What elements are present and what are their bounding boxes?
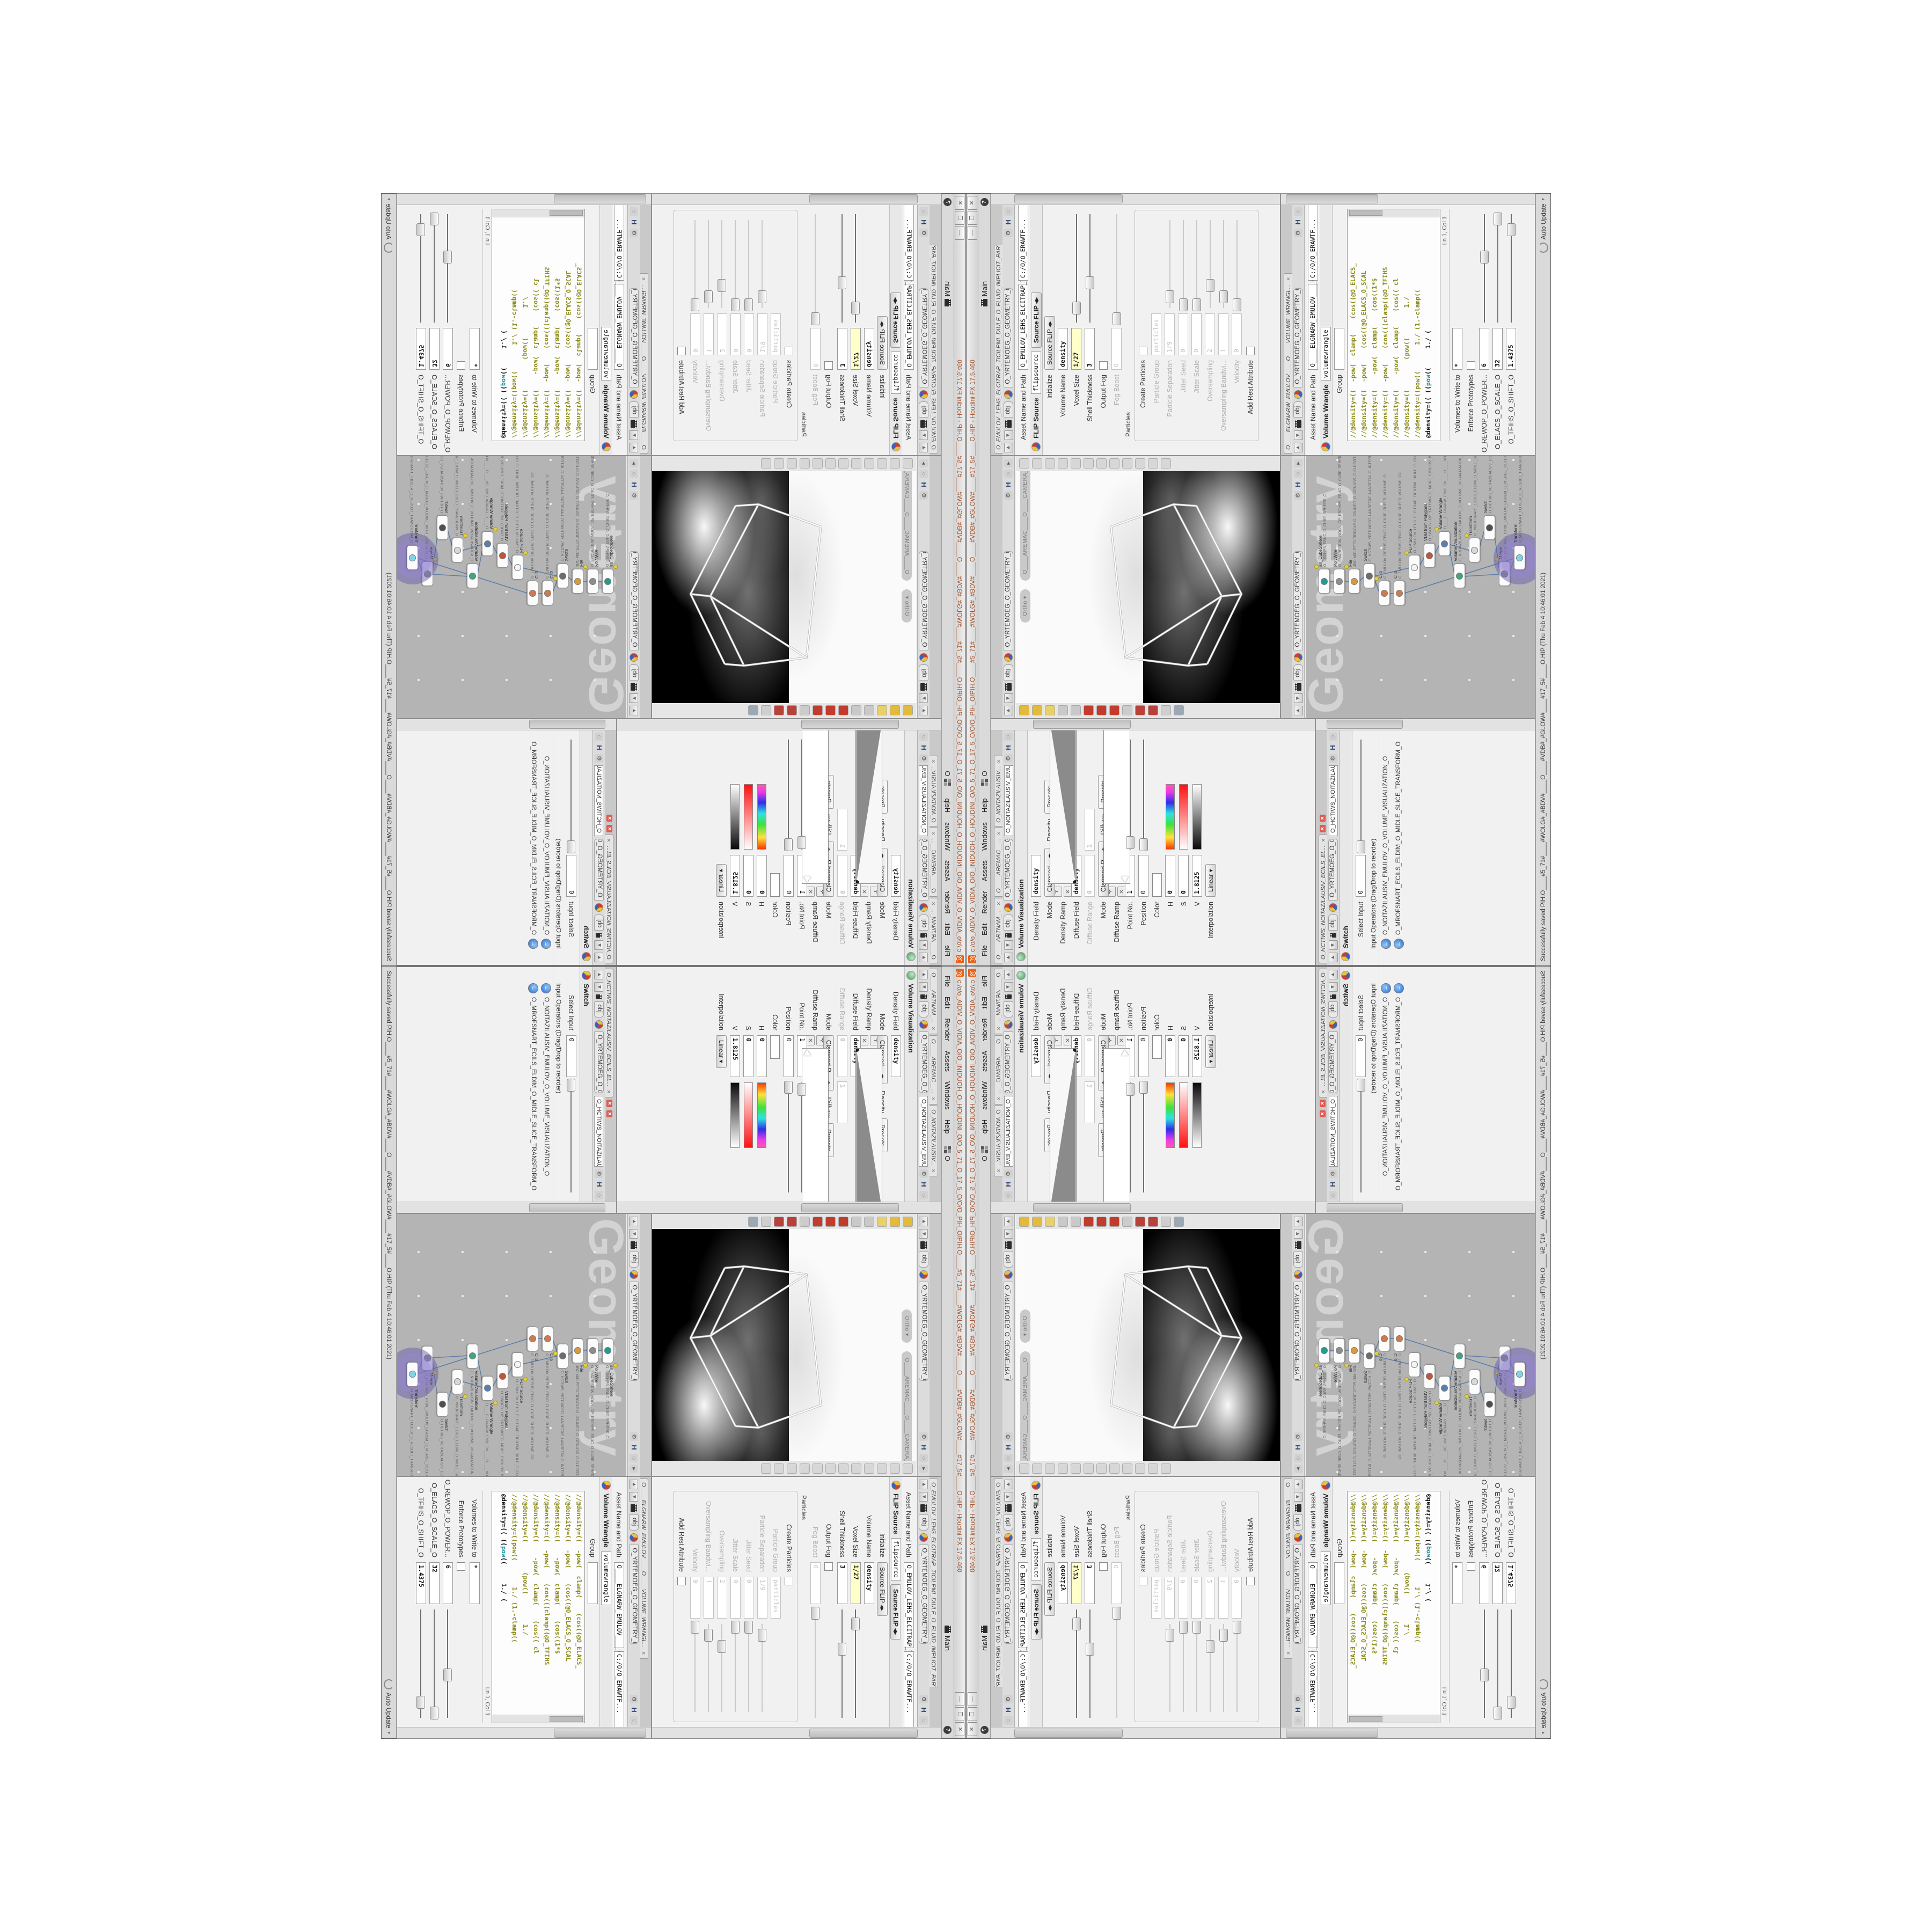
path-crumb-node[interactable]: O_YRTEMOEG_O_GEOMETRY_O xyxy=(919,1282,928,1381)
gear-icon[interactable]: ⚙ xyxy=(919,754,928,763)
path-crumb-obj[interactable]: obj xyxy=(1293,401,1303,418)
path-up-icon[interactable]: ▲ xyxy=(630,1480,639,1489)
ortho-pill[interactable]: Ortho ▾ xyxy=(902,589,912,623)
search-icon[interactable]: ◌ xyxy=(1004,1191,1013,1199)
checkbox[interactable] xyxy=(1467,361,1475,370)
param-field[interactable]: density xyxy=(1031,855,1041,897)
close-button[interactable]: ✕ xyxy=(955,196,965,210)
menu-assets[interactable]: Assets xyxy=(980,1046,989,1077)
pane-scrollbar[interactable] xyxy=(1316,719,1535,730)
pane-tab[interactable]: O____ELGNARW_EMULOV____O____VOLUME_WRANG… xyxy=(1284,273,1292,453)
snap-magnet-icon[interactable] xyxy=(1135,1217,1145,1227)
shade-icon[interactable] xyxy=(1071,459,1081,469)
minimize-button[interactable]: — xyxy=(968,1692,977,1706)
param-slider[interactable] xyxy=(1165,220,1174,308)
pane-scrollbar[interactable] xyxy=(652,1727,941,1738)
path-crumb-obj[interactable]: obj xyxy=(1293,1252,1303,1268)
tab-close-icon[interactable]: ✕ xyxy=(931,831,936,836)
hue-slider-track[interactable] xyxy=(757,1082,766,1148)
network-node-clip[interactable]: ClipO_EMULOV_REPUS_EBUC_O_CUBE_SUPER_VOL… xyxy=(527,1327,538,1351)
param-field[interactable]: 1.4375 xyxy=(1506,1562,1516,1604)
asset-name-field[interactable]: O_EMULOV_LEHS_ELCITRAP_TICI xyxy=(1018,284,1028,370)
input-operator-row[interactable]: ←O_NOITAZILAUSIV_EMULOV_O_VOLUME_VISUALI… xyxy=(540,730,553,965)
slider-handle[interactable] xyxy=(1206,279,1214,292)
desktop-selector[interactable]: Main xyxy=(944,281,952,306)
axis-tool-icon[interactable] xyxy=(1122,1217,1132,1227)
camera-pill[interactable]: O____AREMAC____O____CAMERA____O xyxy=(1020,1351,1030,1461)
menu-edit[interactable]: Edit xyxy=(980,992,989,1013)
scrollbar-thumb[interactable] xyxy=(809,1729,918,1738)
tab-close-icon[interactable]: ✕ xyxy=(996,1097,1002,1101)
input-operator-row[interactable]: ←O_MROFSNART_ECILS_ELDIM_O_MIDLE_SLICE_T… xyxy=(1392,967,1405,1202)
tab-close-red-icon[interactable]: ✕ xyxy=(606,1110,612,1118)
gear-icon[interactable]: ⚙ xyxy=(1294,229,1302,237)
network-node-transform[interactable]: TransformO_MROFSNART_TLUSER_O_RESULT_TRA… xyxy=(1514,1362,1525,1387)
title-bar[interactable]: c:/o/o_AIDIV_O_VIDIA_O/O_INIDUOH_O_HOUDI… xyxy=(954,194,965,965)
param-field[interactable]: 1/9 xyxy=(757,1577,767,1619)
pane-tab[interactable]: O____ELGNARW_EMULOV____O____VOLUME_WRANG… xyxy=(640,273,648,453)
network-canvas[interactable]: Geometryan_CubeSphereO_EREHPS_EBUC_O_CUB… xyxy=(1306,456,1535,718)
param-field[interactable]: particles xyxy=(1151,1577,1161,1619)
network-node-polywire[interactable]: PolyWireO_EMARFERIW_NOGYLOP_EREHPS_EBUC_… xyxy=(1334,1338,1345,1363)
pane-path-field[interactable]: O_NOITAZILAUSIV_EMULO xyxy=(919,765,928,836)
val-slider-track[interactable] xyxy=(730,784,740,850)
network-node-switch[interactable]: SwitchO_HCTIWS_NOITAZILAUSIV_ECILS_ELDIM… xyxy=(1484,1392,1495,1417)
gear-icon[interactable]: ⚙ xyxy=(1294,491,1302,500)
axis-tool-icon[interactable] xyxy=(1122,706,1132,716)
param-dropdown[interactable]: Linear ▾ xyxy=(1205,1035,1216,1068)
network-node-switch[interactable]: SwitchO_HCTIWS_NOITAZILAUSIV_ECILS_ELDIM… xyxy=(437,1392,448,1417)
path-down-icon[interactable]: ▼ xyxy=(1004,940,1013,950)
network-node-an-cubesphere[interactable]: an_CubeSphereO_EREHPS_EBUC_O_CUBE_SPHERE… xyxy=(602,569,613,594)
lasso-tool-icon[interactable] xyxy=(1032,706,1042,716)
tab-close-icon[interactable]: ✕ xyxy=(931,1097,936,1101)
network-node-volume-visualization[interactable]: Volume VisualizationO_NOITAZILAUSIV_EMUL… xyxy=(467,1344,478,1368)
normals-icon[interactable] xyxy=(813,1463,823,1474)
path-crumb-node[interactable]: O_YRTEMOEG_O_GEOMETRY_O xyxy=(629,551,639,650)
search-icon[interactable]: ◌ xyxy=(630,1716,638,1725)
pane-path-field[interactable]: O_NOITAZILAUSIV_EMULO xyxy=(919,1096,928,1167)
slider-handle[interactable] xyxy=(1072,302,1081,314)
path-up-icon[interactable]: ▲ xyxy=(630,1217,639,1226)
param-field[interactable]: 1.4375 xyxy=(416,328,426,370)
rotate-tool-icon[interactable] xyxy=(1084,706,1094,716)
param-slider[interactable] xyxy=(851,214,860,323)
normals-icon[interactable] xyxy=(1109,1463,1119,1474)
param-slider[interactable] xyxy=(1179,1624,1188,1712)
pane-tab[interactable]: O_NOITAZILAUSIV...✕ xyxy=(930,1106,938,1176)
viewport-canvas[interactable]: Ortho ▾O____AREMAC____O____CAMERA____O xyxy=(652,1229,916,1461)
snap-multi-icon[interactable] xyxy=(774,1217,784,1227)
scrollbar-thumb[interactable] xyxy=(801,1203,899,1212)
scrollbar-thumb[interactable] xyxy=(529,1203,605,1212)
param-slider[interactable] xyxy=(704,1624,713,1712)
pane-tab[interactable]: O_NOITAZILAUSIV...✕ xyxy=(994,756,1002,826)
checkbox[interactable] xyxy=(1246,347,1255,355)
gear-icon[interactable]: ⚙ xyxy=(1004,1169,1013,1178)
checkbox[interactable] xyxy=(1099,361,1108,370)
help-icon[interactable]: ? xyxy=(944,198,952,206)
lights-icon[interactable] xyxy=(1122,1463,1132,1474)
paint-tool-icon[interactable] xyxy=(1045,1217,1055,1227)
path-down-icon[interactable]: ▼ xyxy=(1004,430,1013,440)
tab-close-icon[interactable]: ✕ xyxy=(996,902,1002,906)
param-field[interactable]: 2 xyxy=(717,313,727,355)
param-field[interactable]: * xyxy=(470,328,480,370)
gear-icon[interactable]: ⚙ xyxy=(630,1432,638,1441)
param-field[interactable]: 0 xyxy=(1138,855,1148,897)
checkbox[interactable] xyxy=(785,347,794,355)
menu-edit[interactable]: Edit xyxy=(944,919,952,940)
points-icon[interactable] xyxy=(1096,459,1107,469)
fog-icon[interactable] xyxy=(1135,459,1145,469)
range-max-field[interactable]: 1 xyxy=(1085,809,1095,851)
fog-icon[interactable] xyxy=(787,1463,797,1474)
scrollbar-thumb[interactable] xyxy=(1033,1203,1131,1212)
param-slider[interactable] xyxy=(1139,1082,1148,1192)
gear-icon[interactable]: ⚙ xyxy=(919,1169,928,1178)
snapshot-icon[interactable] xyxy=(761,459,771,469)
scrollbar-thumb[interactable] xyxy=(1286,1729,1378,1738)
pane-expand-icon[interactable]: ▸ xyxy=(1004,1465,1013,1473)
param-slider[interactable] xyxy=(1192,220,1201,308)
param-field[interactable] xyxy=(1334,328,1344,370)
slider-handle[interactable] xyxy=(1480,1668,1489,1681)
path-up-icon[interactable]: ▲ xyxy=(1329,953,1338,962)
tab-close-icon[interactable]: ✕ xyxy=(641,1651,647,1656)
render-region-icon[interactable] xyxy=(1161,706,1171,716)
param-dropdown[interactable]: Linear ▾ xyxy=(1205,864,1216,897)
param-field[interactable]: 3 xyxy=(837,328,847,370)
pane-expand-icon[interactable]: ▸ xyxy=(919,1465,928,1473)
input-arrow-icon[interactable]: ← xyxy=(529,939,539,949)
pane-expand-icon[interactable]: ▸ xyxy=(630,459,638,467)
path-up-icon[interactable]: ▲ xyxy=(919,443,928,452)
pane-scrollbar[interactable] xyxy=(397,1202,616,1213)
pane-expand-icon[interactable]: ▸ xyxy=(1004,459,1013,467)
network-node-volume-wrangle[interactable]: Volume WrangleO____ELGNARW_EMULOV____O__… xyxy=(482,531,493,556)
menu-assets[interactable]: Assets xyxy=(980,855,989,886)
param-field[interactable]: 1/9 xyxy=(757,313,767,355)
slider-handle[interactable] xyxy=(1206,1640,1214,1653)
path-down-icon[interactable]: ▼ xyxy=(1294,430,1303,440)
snapshot-icon[interactable] xyxy=(1161,459,1171,469)
menu-file[interactable]: File xyxy=(980,940,989,961)
pane-path-field[interactable]: O_HCTIWS_NOITAZILAUSIV_ECILS_EL xyxy=(1329,765,1338,836)
path-down-icon[interactable]: ▼ xyxy=(919,430,928,440)
pane-scrollbar[interactable] xyxy=(991,719,1315,730)
path-crumb-obj[interactable]: obj xyxy=(1293,664,1303,680)
search-icon[interactable]: ◌ xyxy=(919,733,928,741)
slider-handle[interactable] xyxy=(1233,298,1241,311)
search-icon[interactable]: ◌ xyxy=(1329,1191,1337,1199)
path-crumb-obj[interactable]: obj xyxy=(1328,1001,1338,1018)
tab-close-red-icon[interactable]: ✕ xyxy=(1320,1110,1326,1118)
scrollbar-thumb[interactable] xyxy=(529,720,605,729)
path-crumb-node[interactable]: O_YRTEMOEG_O_GEOMETRY_O xyxy=(919,1545,928,1644)
path-crumb-obj[interactable]: obj xyxy=(919,1001,928,1018)
node-name-field[interactable]: flipsource xyxy=(1031,1538,1041,1580)
node-name-field[interactable]: flipsource xyxy=(891,352,901,394)
rotate-tool-icon[interactable] xyxy=(1084,1217,1094,1227)
param-field[interactable]: 0 xyxy=(784,855,794,897)
view-tool-icon[interactable] xyxy=(1058,1217,1068,1227)
hsv-value-field[interactable]: 1.8125 xyxy=(730,855,740,897)
param-slider[interactable] xyxy=(1125,1082,1135,1192)
param-field[interactable]: 1.4375 xyxy=(1506,328,1516,370)
slider-handle[interactable] xyxy=(1192,1621,1201,1634)
move-tool-icon[interactable] xyxy=(1071,706,1081,716)
slider-handle[interactable] xyxy=(1233,1621,1241,1634)
pane-tab[interactable]: O_EMULOV_LEHS_ELCITRAP_TICILPMI_DIULF_O_… xyxy=(930,245,938,453)
checkbox[interactable] xyxy=(678,1577,686,1585)
asset-path-field[interactable]: C:/O/O_ERAWTF... xyxy=(1308,204,1318,281)
tab-close-icon[interactable]: ✕ xyxy=(931,902,936,906)
network-node-file[interactable]: FileJBO.M01.PETS.TIRGOLS.O_SSUNEG_O_GENU… xyxy=(1349,569,1360,594)
lights-icon[interactable] xyxy=(800,1463,810,1474)
slider-handle[interactable] xyxy=(744,298,753,311)
param-slider[interactable] xyxy=(443,1609,452,1718)
pane-tab[interactable]: O____ARTNAM_...✕ xyxy=(994,898,1002,963)
help-icon[interactable]: ? xyxy=(980,198,989,206)
path-crumb-node[interactable]: O_YRTEMOEG_O_GEOMETRY_O xyxy=(1004,1545,1013,1644)
grid-icon[interactable] xyxy=(864,459,874,469)
network-node-switch[interactable]: SwitchO_HCTIWS_YRTEMOEG_LANRETXE_LANRETN… xyxy=(1364,1344,1375,1368)
camera-pill[interactable]: O____AREMAC____O____CAMERA____O xyxy=(902,471,912,581)
path-crumb-obj[interactable]: obj xyxy=(594,914,604,931)
param-field[interactable]: 0 xyxy=(730,313,741,355)
scale-tool-icon[interactable] xyxy=(825,706,836,716)
param-field[interactable] xyxy=(588,1562,598,1604)
slider-handle[interactable] xyxy=(1139,838,1148,851)
preset-dropdown[interactable]: Source FLIP ◂▸ xyxy=(1031,292,1042,348)
param-field[interactable]: density xyxy=(864,328,874,370)
select-tool-icon[interactable] xyxy=(903,1217,913,1227)
pane-scrollbar[interactable] xyxy=(397,1727,651,1738)
fog-icon[interactable] xyxy=(787,459,797,469)
path-crumb-node[interactable]: O_YRTEMOEG_O_GEOMETRY_O xyxy=(594,1031,604,1093)
path-crumb-node[interactable]: O_YRTEMOEG_O_GEOMETRY_O xyxy=(1293,288,1303,387)
param-field[interactable]: 6 xyxy=(443,1562,453,1604)
slider-handle[interactable] xyxy=(718,279,726,292)
network-node-file[interactable]: FileJBO.M01.PETS.TIRGOLS.O_SSUNEG_O_GENU… xyxy=(572,569,583,594)
network-node-clip[interactable]: ClipO_EMULOV_REPUS_EBUC_O_CUBE_SUPER_VOL… xyxy=(542,1327,553,1351)
pane-tab[interactable]: O_HCTIWS_NOITAZILAUSIV_ECILS_EL...✕ xyxy=(605,969,613,1097)
network-node-vdb-from-polygons[interactable]: VDB from PolygonsO_SNOGYLOP_YRTEMOEG_MOR… xyxy=(1424,543,1435,568)
pane-path-field[interactable]: O_HCTIWS_NOITAZILAUSIV_ECILS_EL xyxy=(595,765,604,836)
gear-icon[interactable]: ⚙ xyxy=(630,229,638,237)
slider-handle[interactable] xyxy=(691,1621,699,1634)
param-slider[interactable] xyxy=(1112,214,1121,323)
slider-handle[interactable] xyxy=(416,1696,425,1709)
network-node-switch[interactable]: SwitchO_HCTIWS_YRTEMOEG_LANRETXE_LANRETN… xyxy=(557,563,568,588)
param-field[interactable]: * xyxy=(470,1562,480,1604)
param-field[interactable]: 0 xyxy=(566,1035,576,1077)
param-slider[interactable] xyxy=(1480,214,1489,323)
slider-handle[interactable] xyxy=(1126,836,1135,849)
param-field[interactable]: 1/27 xyxy=(851,328,861,370)
checkbox[interactable] xyxy=(825,361,833,370)
ramp-point-marker[interactable] xyxy=(804,1050,811,1056)
network-node-transform[interactable]: TransformO_MROFSNART_ECILS_ELDIM_O_MIDLE… xyxy=(452,538,463,562)
param-field[interactable]: particles xyxy=(771,313,781,355)
path-crumb-node[interactable]: O_YRTEMOEG_O_GEOMETRY_O xyxy=(1328,839,1338,901)
param-field[interactable]: 32 xyxy=(1492,328,1503,370)
slider-handle[interactable] xyxy=(416,223,425,236)
menu-help[interactable]: Help xyxy=(980,1115,989,1139)
slider-handle[interactable] xyxy=(1494,213,1502,225)
snapshot-icon[interactable] xyxy=(761,1463,771,1474)
render-region-icon[interactable] xyxy=(1161,1217,1171,1227)
normals-icon[interactable] xyxy=(1109,459,1119,469)
camera-icon[interactable] xyxy=(890,1463,900,1474)
menu-desktop-item[interactable]: O xyxy=(944,1146,952,1161)
render-region-icon[interactable] xyxy=(761,706,771,716)
pane-tab[interactable]: O____AREMAC__...✕ xyxy=(994,828,1002,897)
checkbox[interactable] xyxy=(1139,347,1147,355)
grid-icon[interactable] xyxy=(1058,459,1068,469)
film-reel-icon[interactable] xyxy=(1174,1217,1184,1227)
film-reel-icon[interactable] xyxy=(748,706,758,716)
param-field[interactable]: 2 xyxy=(717,1577,727,1619)
gear-icon[interactable]: ⚙ xyxy=(1004,754,1013,763)
network-node-file[interactable]: FileJBO.M01.PETS.TIRGOLS.O_SSUNEG_O_GENU… xyxy=(572,1338,583,1363)
gear-icon[interactable]: ⚙ xyxy=(1294,1432,1302,1441)
param-slider[interactable] xyxy=(1506,1609,1516,1718)
asset-path-field[interactable]: C:/O/O_ERAWTF... xyxy=(904,204,914,281)
param-field[interactable]: 0 xyxy=(1138,1035,1148,1077)
network-node-switch[interactable]: SwitchO_HCTIWS_YRTEMOEG_LANRETXE_LANRETN… xyxy=(1364,563,1375,588)
pane-tab[interactable]: O____AREMAC__...✕ xyxy=(930,1035,938,1104)
input-operator-row[interactable]: ←O_MROFSNART_ECILS_ELDIM_O_MIDLE_SLICE_T… xyxy=(1392,730,1405,965)
menu-help[interactable]: Help xyxy=(980,793,989,817)
network-node-switch[interactable]: SwitchO_HCTIWS_YRTEMOEG_LANRETXE_LANRETN… xyxy=(557,1344,568,1368)
param-field[interactable]: particles xyxy=(771,1577,781,1619)
search-icon[interactable]: ◌ xyxy=(595,733,603,741)
network-node-flip-source[interactable]: FLIP SourceO_EMULOV_LEHS_ELCITRAP_TICILP… xyxy=(1409,555,1420,580)
checkbox[interactable] xyxy=(785,1577,794,1585)
path-up-icon[interactable]: ▲ xyxy=(630,706,639,715)
hsv-value-field[interactable]: 0 xyxy=(743,1035,753,1077)
param-field[interactable]: 2 xyxy=(1205,1577,1215,1619)
slider-handle[interactable] xyxy=(811,312,819,325)
gear-icon[interactable]: ⚙ xyxy=(919,229,928,237)
density-ramp-widget[interactable] xyxy=(856,1048,883,1202)
param-slider[interactable] xyxy=(1480,1609,1489,1718)
path-down-icon[interactable]: ▼ xyxy=(1294,693,1303,703)
path-up-icon[interactable]: ▲ xyxy=(919,970,928,979)
wire-icon[interactable] xyxy=(1084,1463,1094,1474)
asset-name-field[interactable]: O_EMULOV_LEHS_ELCITRAP_TICI xyxy=(1018,1562,1028,1648)
desktop-selector[interactable]: Main xyxy=(944,1626,952,1651)
param-field[interactable]: 6 xyxy=(1479,328,1489,370)
camera-icon[interactable] xyxy=(1032,459,1042,469)
input-operator-row[interactable]: ←O_NOITAZILAUSIV_EMULOV_O_VOLUME_VISUALI… xyxy=(1379,730,1392,965)
snapshot-icon[interactable] xyxy=(1161,1463,1171,1474)
pane-scrollbar[interactable] xyxy=(617,1202,941,1213)
search-icon[interactable]: ◌ xyxy=(1004,733,1013,741)
ramp-point-handle[interactable] xyxy=(1073,880,1077,884)
scrollbar-thumb[interactable] xyxy=(1327,1203,1403,1212)
path-down-icon[interactable]: ▼ xyxy=(1004,693,1013,703)
param-field[interactable]: 3 xyxy=(1085,1562,1095,1604)
pin-icon[interactable] xyxy=(1045,459,1055,469)
network-node-an-cubesphere[interactable]: an_CubeSphereO_EREHPS_EBUC_O_CUBE_SPHERE… xyxy=(1319,1338,1330,1363)
path-crumb-node[interactable]: O_YRTEMOEG_O_GEOMETRY_O xyxy=(629,1545,639,1644)
wire-icon[interactable] xyxy=(838,459,848,469)
normals-icon[interactable] xyxy=(813,459,823,469)
param-slider[interactable] xyxy=(851,1609,860,1718)
pane-path-field[interactable]: O_HCTIWS_NOITAZILAUSIV_ECILS_EL xyxy=(1329,1096,1338,1167)
menu-desktop-item[interactable]: O xyxy=(980,771,989,786)
param-field[interactable]: 1 xyxy=(704,313,714,355)
param-field[interactable]: density xyxy=(1058,1562,1068,1604)
desktop-selector[interactable]: Main xyxy=(980,281,989,306)
network-node-polywire[interactable]: PolyWireO_EMARFERIW_NOGYLOP_EREHPS_EBUC_… xyxy=(587,569,598,594)
pane-tab[interactable]: O_NOITAZILAUSIV...✕ xyxy=(994,1106,1002,1176)
path-crumb-obj[interactable]: obj xyxy=(629,1514,639,1531)
path-down-icon[interactable]: ▼ xyxy=(919,1229,928,1239)
snap-multi-icon[interactable] xyxy=(1148,706,1158,716)
asset-path-field[interactable]: C:/O/O_ERAWTF... xyxy=(904,1651,914,1728)
path-crumb-obj[interactable]: obj xyxy=(919,914,928,931)
menu-render[interactable]: Render xyxy=(980,886,989,919)
param-dropdown[interactable]: Source FLIP ◂▸ xyxy=(877,316,888,370)
menu-desktop-item[interactable]: O xyxy=(980,1146,989,1161)
input-arrow-icon[interactable]: ← xyxy=(541,983,552,993)
slider-handle[interactable] xyxy=(443,251,452,264)
range-max-field[interactable]: 1 xyxy=(837,1081,847,1123)
network-node-switch[interactable]: SwitchO_HCTIWS_NOITAZILAUSIV_ECILS_ELDIM… xyxy=(437,515,448,540)
path-down-icon[interactable]: ▼ xyxy=(630,693,639,703)
path-crumb-obj[interactable]: obj xyxy=(919,1514,928,1531)
hue-slider-track[interactable] xyxy=(757,784,766,850)
maximize-button[interactable]: ❐ xyxy=(968,1707,977,1721)
param-field[interactable]: * xyxy=(1452,1562,1462,1604)
pane-tab[interactable]: O____ELGNARW_EMULOV____O____VOLUME_WRANG… xyxy=(640,1479,648,1659)
path-crumb-node[interactable]: O_YRTEMOEG_O_GEOMETRY_O xyxy=(1328,1031,1338,1093)
path-crumb-node[interactable]: O_YRTEMOEG_O_GEOMETRY_O xyxy=(919,839,928,901)
path-crumb-obj[interactable]: obj xyxy=(919,1252,928,1268)
param-field[interactable]: density xyxy=(1031,1035,1041,1077)
param-field[interactable]: 0 xyxy=(566,855,576,897)
param-slider[interactable] xyxy=(567,740,576,850)
persp-icon[interactable] xyxy=(1019,1463,1029,1474)
lights-icon[interactable] xyxy=(800,459,810,469)
tab-close-red-icon[interactable]: ✕ xyxy=(1320,825,1326,832)
gear-icon[interactable]: ⚙ xyxy=(630,491,638,500)
pane-scrollbar[interactable] xyxy=(397,719,616,730)
pane-tab[interactable]: O____AREMAC__...✕ xyxy=(930,828,938,897)
move-tool-icon[interactable] xyxy=(851,706,861,716)
param-field[interactable]: 6 xyxy=(1479,1562,1489,1604)
param-field[interactable]: 0 xyxy=(784,1035,794,1077)
ramp-point-marker[interactable] xyxy=(804,876,811,882)
title-bar[interactable]: c:/o/o_AIDIV_O_VIDIA_O/O_INIDUOH_O_HOUDI… xyxy=(967,194,978,965)
camera-icon[interactable] xyxy=(890,459,900,469)
menu-help[interactable]: Help xyxy=(944,1115,952,1139)
slider-handle[interactable] xyxy=(567,1079,575,1092)
tab-close-icon[interactable]: ✕ xyxy=(996,1027,1002,1031)
path-crumb-node[interactable]: O_YRTEMOEG_O_GEOMETRY_O xyxy=(919,1031,928,1093)
path-up-icon[interactable]: ▲ xyxy=(1004,443,1013,452)
param-field[interactable]: 0 xyxy=(1356,855,1366,897)
input-operator-row[interactable]: ←O_MROFSNART_ECILS_ELDIM_O_MIDLE_SLICE_T… xyxy=(527,967,540,1202)
path-up-icon[interactable]: ▲ xyxy=(1294,706,1303,715)
range-max-field[interactable]: 1 xyxy=(1085,1081,1095,1123)
move-tool-icon[interactable] xyxy=(851,1217,861,1227)
slider-handle[interactable] xyxy=(784,838,793,851)
